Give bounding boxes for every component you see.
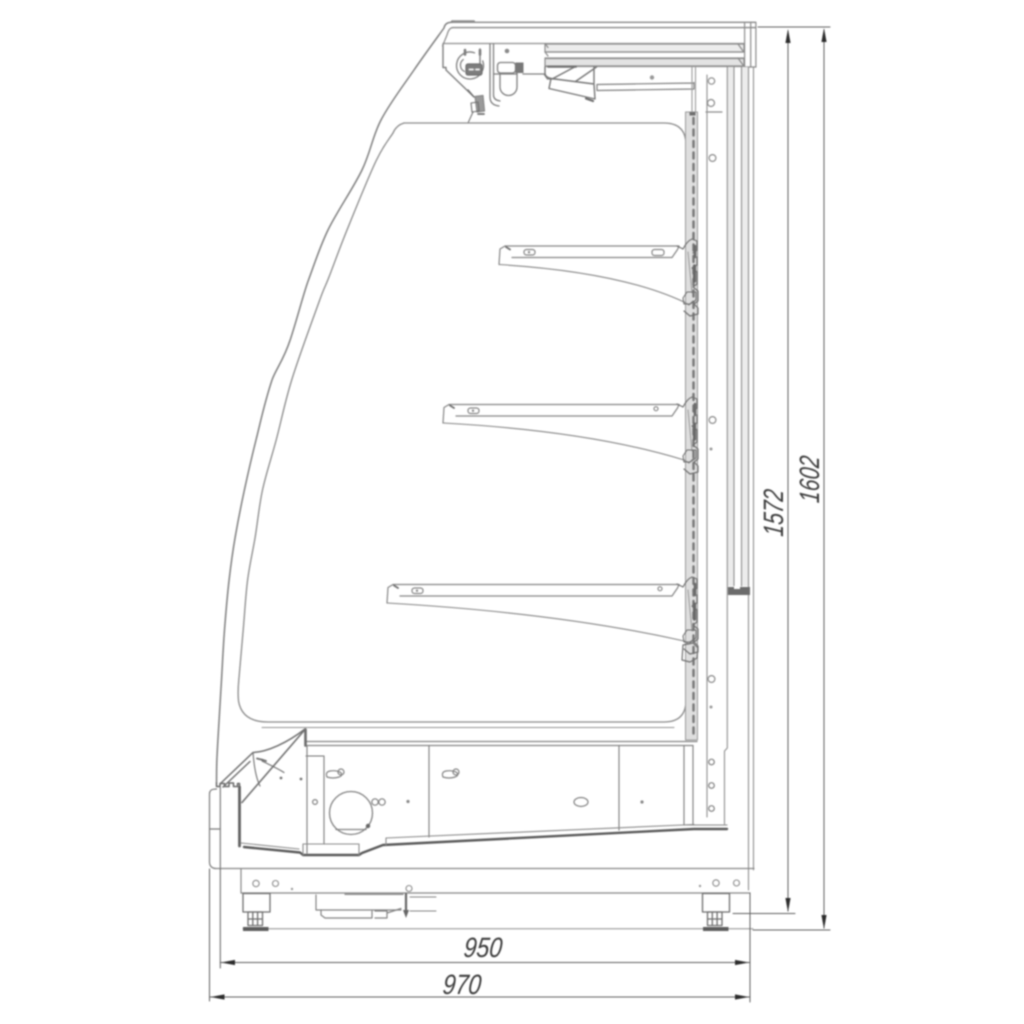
svg-text:1602: 1602 [795, 454, 825, 504]
svg-text:950: 950 [462, 933, 504, 964]
svg-text:1572: 1572 [759, 488, 789, 538]
svg-text:970: 970 [441, 970, 483, 1001]
